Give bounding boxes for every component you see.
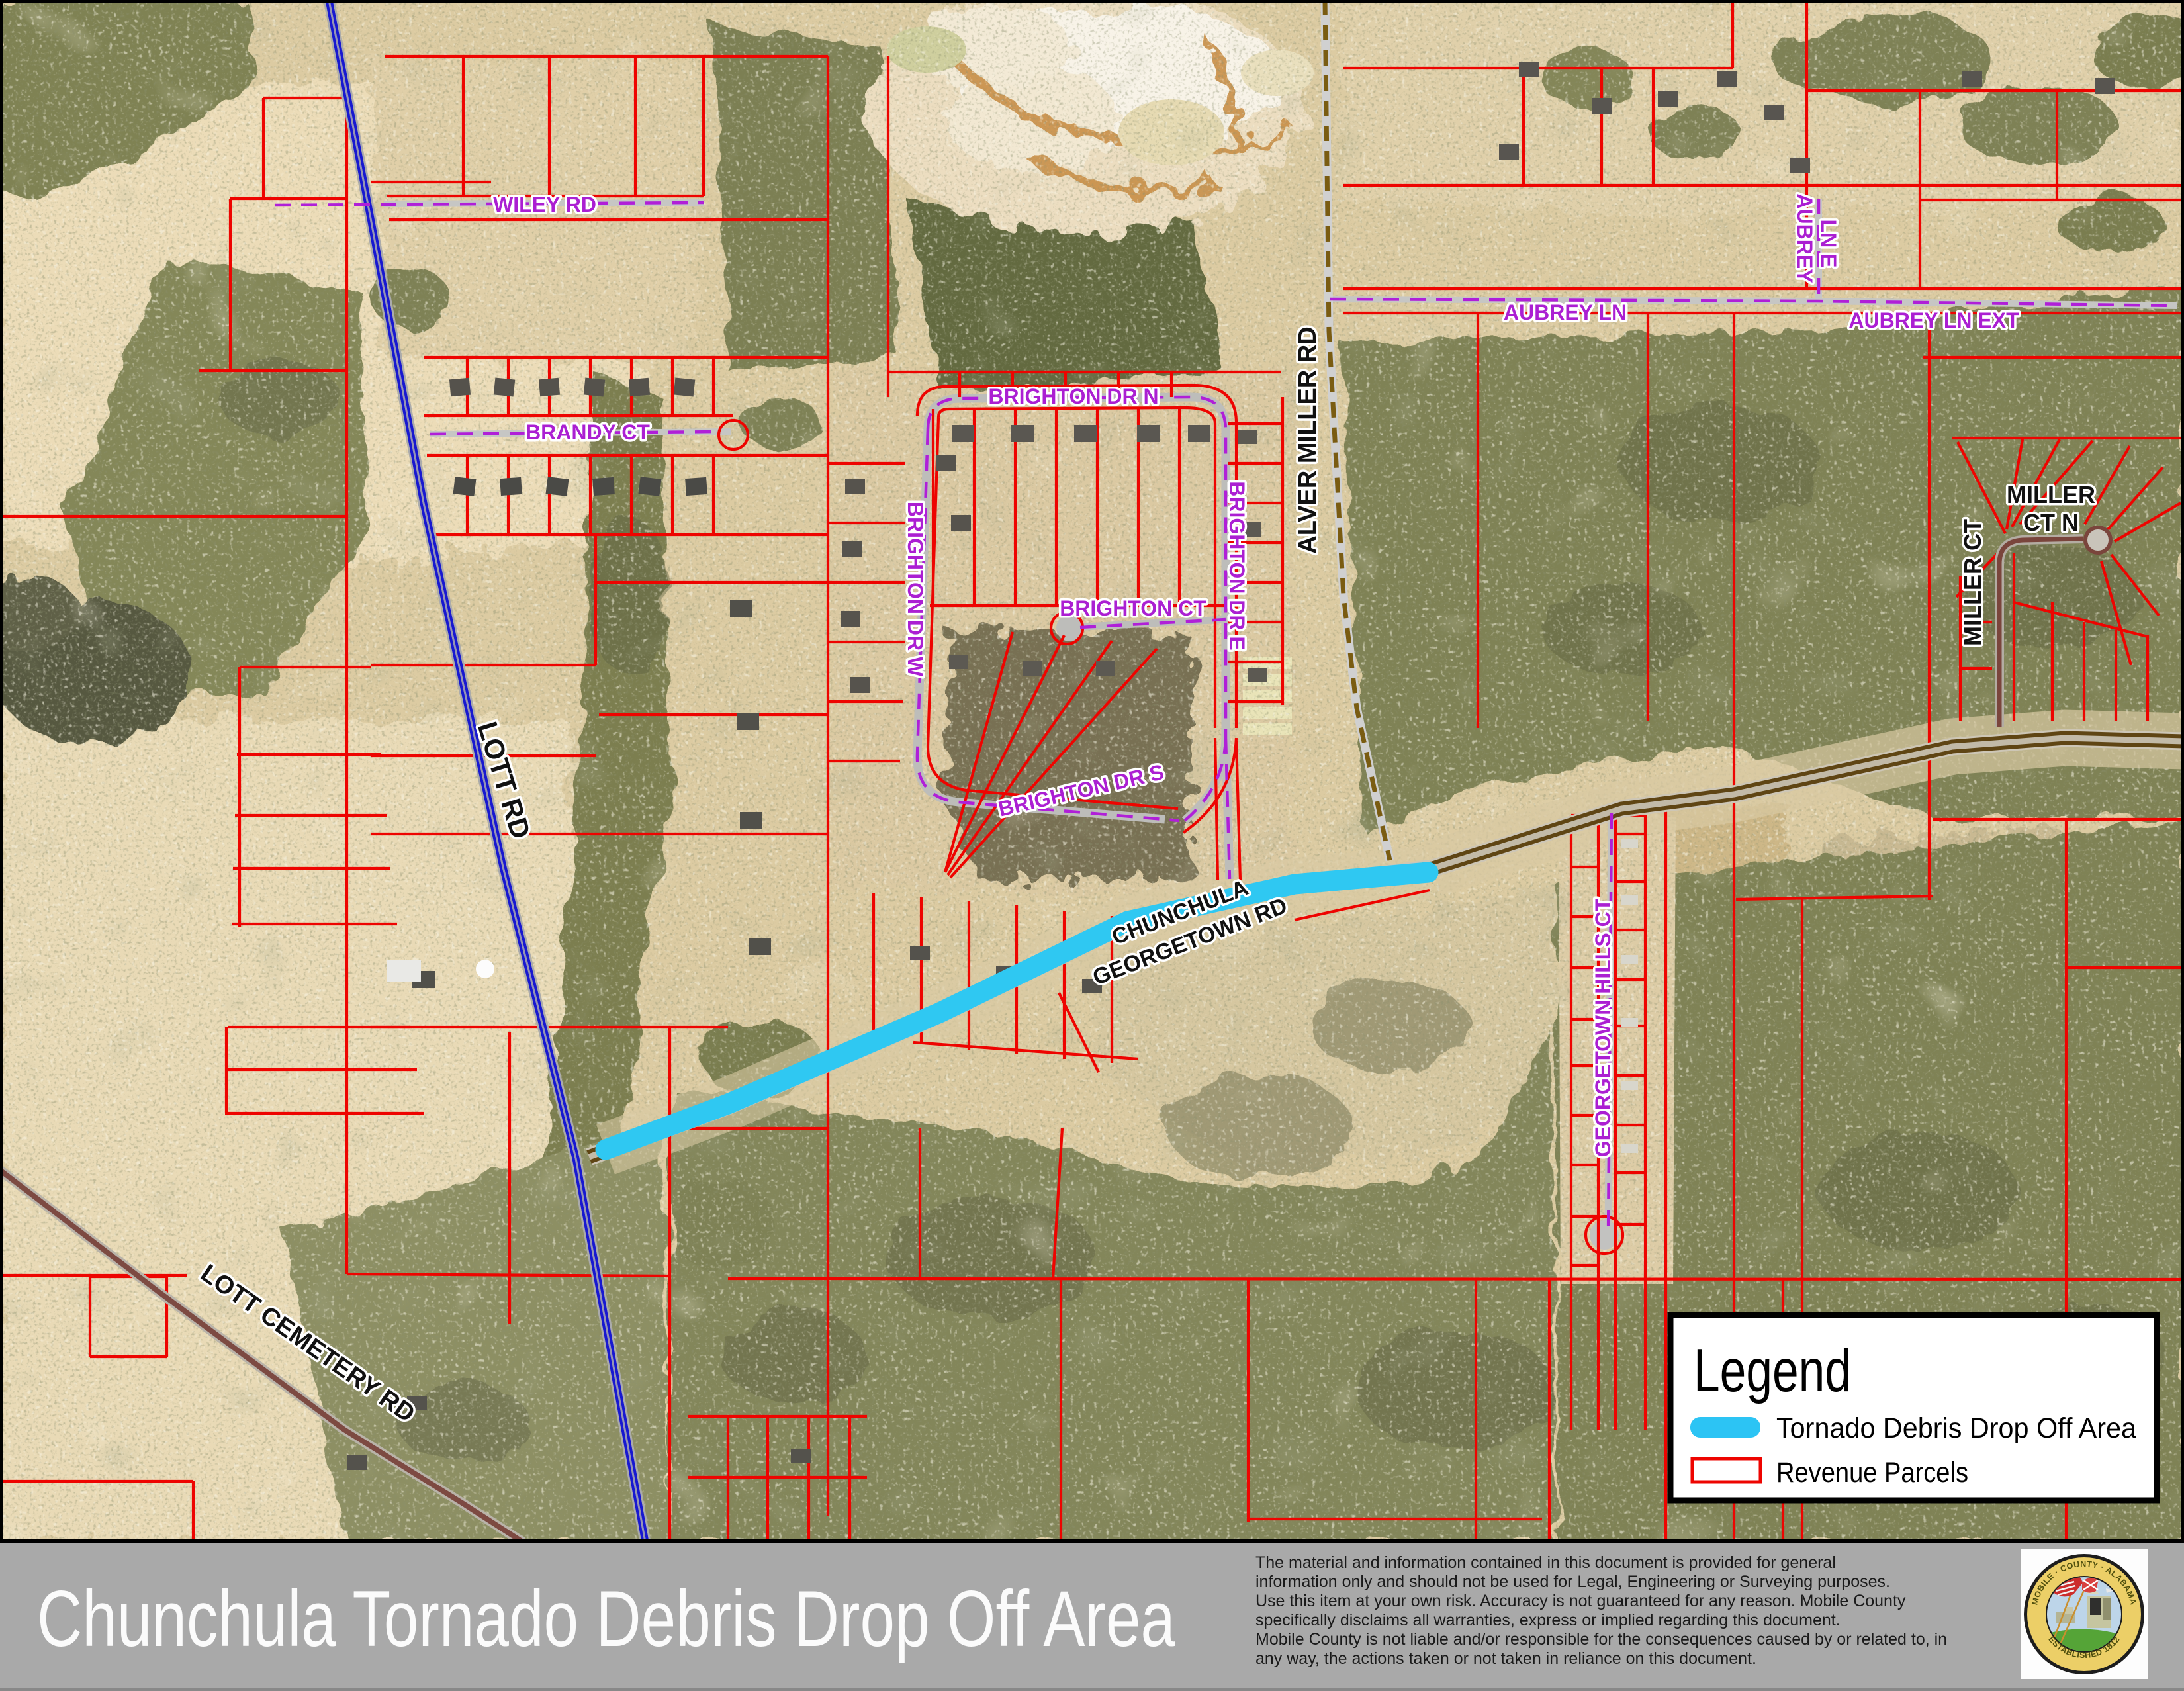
svg-text:AUBREY LN: AUBREY LN [1504, 300, 1627, 324]
svg-text:AUBREY: AUBREY [1793, 193, 1817, 283]
svg-text:BRIGHTON DR E: BRIGHTON DR E [1225, 481, 1249, 650]
svg-text:CT N: CT N [2023, 509, 2079, 536]
svg-text:information only and should no: information only and should not be used … [1255, 1573, 1890, 1591]
svg-text:Use this item at your own risk: Use this item at your own risk. Accuracy… [1255, 1592, 1906, 1610]
svg-text:WILEY RD: WILEY RD [493, 193, 596, 216]
svg-text:Mobile County is not liable an: Mobile County is not liable and/or respo… [1255, 1630, 1947, 1649]
svg-text:BRIGHTON DR W: BRIGHTON DR W [903, 502, 927, 677]
svg-text:BRANDY CT: BRANDY CT [525, 420, 650, 444]
svg-text:The material and information c: The material and information contained i… [1255, 1553, 1836, 1572]
svg-text:MILLER: MILLER [2007, 481, 2095, 508]
svg-text:Revenue Parcels: Revenue Parcels [1776, 1457, 1968, 1488]
svg-text:Legend: Legend [1694, 1338, 1851, 1404]
svg-text:BRIGHTON CT: BRIGHTON CT [1060, 596, 1206, 620]
svg-text:BRIGHTON DR N: BRIGHTON DR N [988, 385, 1158, 408]
svg-text:MILLER CT: MILLER CT [1959, 519, 1986, 646]
svg-text:GEORGETOWN HILLS CT: GEORGETOWN HILLS CT [1591, 898, 1615, 1157]
svg-text:specifically disclaims all war: specifically disclaims all warranties, e… [1255, 1611, 1841, 1629]
svg-text:Tornado Debris Drop Off Area: Tornado Debris Drop Off Area [1776, 1412, 2136, 1444]
svg-text:AUBREY LN EXT: AUBREY LN EXT [1848, 308, 2019, 332]
svg-text:Chunchula Tornado Debris Drop: Chunchula Tornado Debris Drop Off Area [37, 1575, 1175, 1663]
svg-text:LN E: LN E [1817, 220, 1841, 268]
svg-text:any way, the actions taken or: any way, the actions taken or not taken … [1255, 1649, 1756, 1668]
svg-text:ALVER MILLER RD: ALVER MILLER RD [1294, 326, 1322, 553]
